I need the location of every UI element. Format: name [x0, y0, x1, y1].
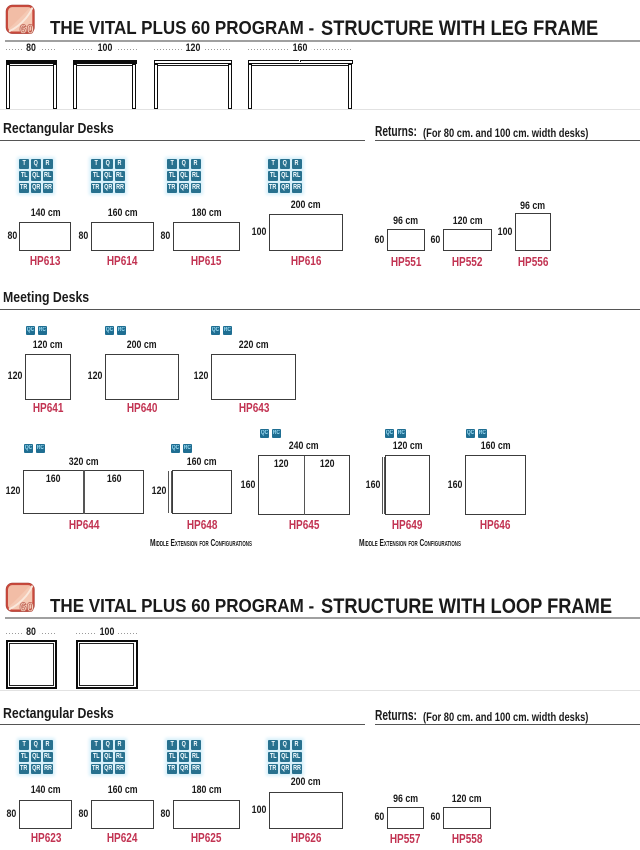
- svg-text:60: 60: [20, 600, 34, 615]
- svg-text:60: 60: [20, 22, 34, 37]
